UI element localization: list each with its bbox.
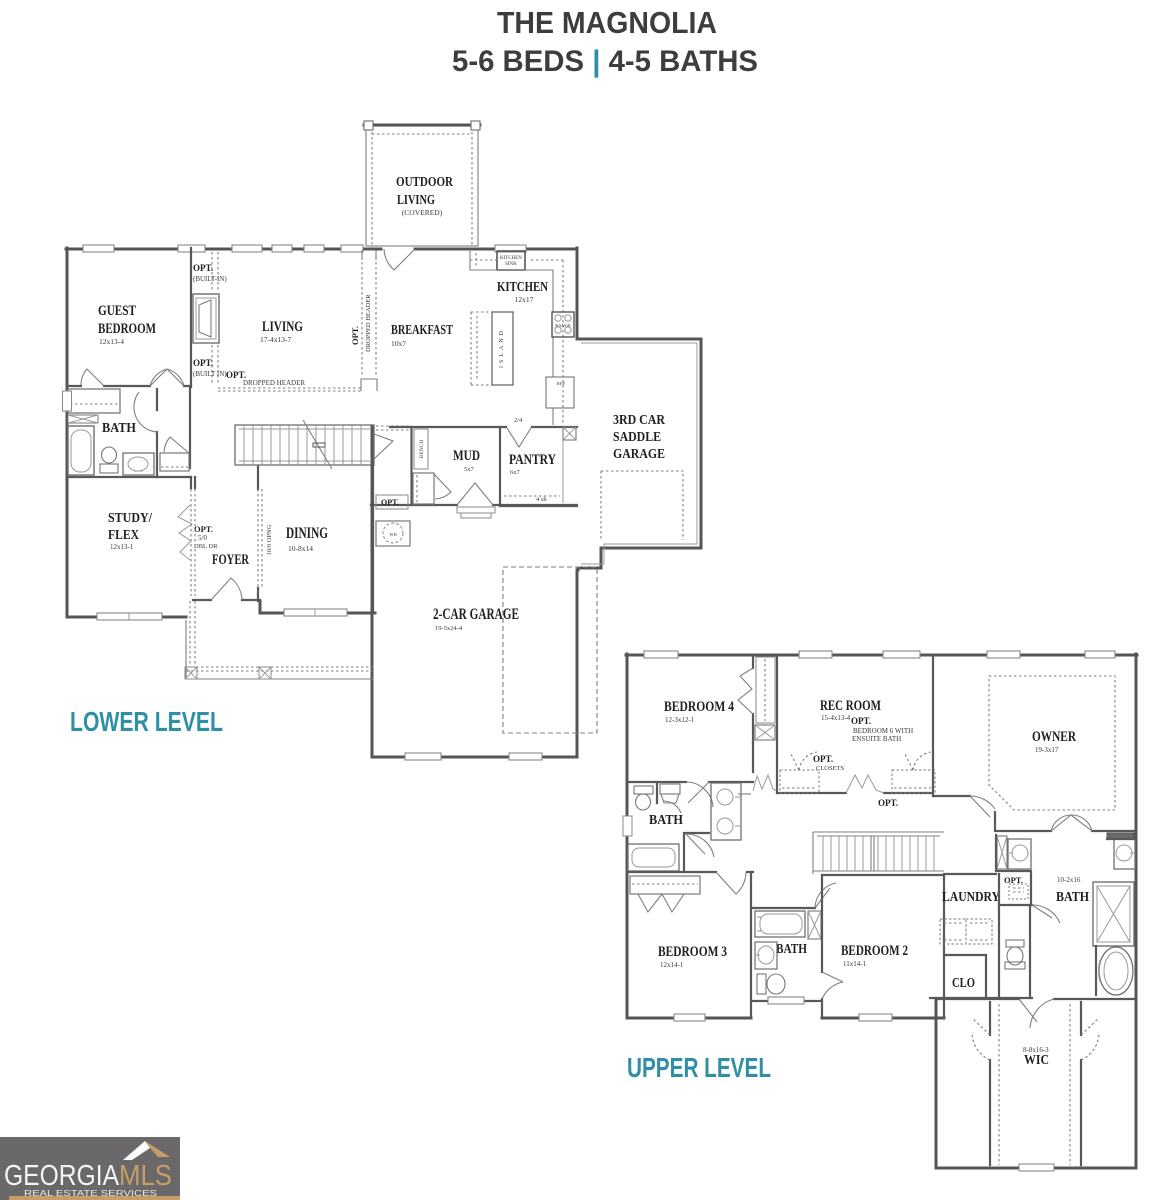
svg-text:LIVING: LIVING [262, 319, 303, 335]
svg-text:10x7: 10x7 [391, 339, 406, 348]
svg-text:BEDROOM: BEDROOM [98, 321, 156, 337]
svg-text:GARAGE: GARAGE [613, 446, 665, 461]
svg-text:WH: WH [389, 532, 397, 537]
svg-text:OPT.: OPT. [813, 754, 833, 764]
svg-text:OPT.: OPT. [194, 524, 213, 534]
svg-text:OPT.: OPT. [350, 326, 360, 345]
svg-text:BEDROOM 3: BEDROOM 3 [658, 944, 727, 960]
svg-text:12x13-1: 12x13-1 [110, 543, 134, 551]
svg-text:BEDROOM 2: BEDROOM 2 [841, 943, 908, 959]
svg-text:ISLAND: ISLAND [499, 328, 505, 368]
svg-text:LIVING: LIVING [397, 193, 435, 208]
svg-text:10-8x14: 10-8x14 [288, 544, 313, 553]
svg-text:17-4x13-7: 17-4x13-7 [260, 335, 291, 344]
svg-text:12x14-1: 12x14-1 [660, 961, 684, 969]
svg-text:BEDROOM 4: BEDROOM 4 [664, 699, 734, 715]
svg-text:WIC: WIC [1024, 1053, 1049, 1068]
svg-text:BENCH: BENCH [419, 440, 425, 459]
svg-text:OPT.: OPT. [193, 263, 213, 273]
svg-text:REF: REF [557, 381, 566, 386]
svg-text:10-2x16: 10-2x16 [1057, 876, 1081, 884]
svg-text:15-4x13-4: 15-4x13-4 [821, 714, 851, 722]
svg-text:UPPER LEVEL: UPPER LEVEL [627, 1052, 771, 1083]
svg-text:SADDLE: SADDLE [613, 429, 661, 444]
svg-text:ENSUITE BATH: ENSUITE BATH [852, 735, 901, 743]
svg-text:4 sh: 4 sh [536, 496, 547, 503]
svg-text:OPT.: OPT. [381, 498, 399, 507]
svg-text:SINK: SINK [505, 262, 517, 267]
svg-text:CLO: CLO [952, 975, 975, 990]
svg-text:12x17: 12x17 [515, 295, 534, 304]
svg-text:10/0 OPNG: 10/0 OPNG [266, 524, 273, 555]
svg-text:5/0: 5/0 [198, 534, 207, 542]
svg-text:5x7: 5x7 [464, 466, 475, 473]
svg-text:THE MAGNOLIA: THE MAGNOLIA [497, 5, 717, 40]
svg-text:OUTDOOR: OUTDOOR [396, 175, 454, 190]
svg-text:RANGE: RANGE [555, 323, 571, 328]
svg-text:(BUILT-IN): (BUILT-IN) [193, 275, 227, 283]
svg-text:LAUNDRY: LAUNDRY [942, 889, 1000, 904]
svg-text:DROPPED HEADER: DROPPED HEADER [365, 294, 372, 352]
svg-text:2-CAR GARAGE: 2-CAR GARAGE [433, 606, 519, 623]
svg-text:2/4: 2/4 [514, 417, 523, 424]
svg-text:3RD CAR: 3RD CAR [613, 412, 665, 427]
svg-text:OPT.: OPT. [193, 358, 213, 368]
svg-text:5-6 BEDS | 4-5 BATHS: 5-6 BEDS | 4-5 BATHS [452, 45, 758, 78]
svg-text:BATH: BATH [776, 941, 807, 956]
svg-text:OPT.: OPT. [851, 716, 871, 726]
svg-text:BEDROOM 6 WITH: BEDROOM 6 WITH [853, 727, 913, 735]
svg-text:DROPPED HEADER: DROPPED HEADER [243, 379, 305, 387]
svg-text:KITCHEN: KITCHEN [497, 280, 548, 295]
svg-text:STUDY/: STUDY/ [108, 510, 152, 525]
svg-text:FOYER: FOYER [212, 552, 249, 568]
svg-text:LOWER LEVEL: LOWER LEVEL [70, 706, 223, 737]
svg-text:REC ROOM: REC ROOM [820, 698, 881, 714]
svg-text:BATH: BATH [102, 420, 136, 435]
svg-text:6x7: 6x7 [510, 469, 521, 476]
svg-text:BATH: BATH [649, 812, 683, 827]
svg-text:OPT.: OPT. [878, 798, 898, 808]
svg-text:PANTRY: PANTRY [509, 452, 556, 468]
svg-text:FLEX: FLEX [108, 527, 139, 542]
svg-text:GUEST: GUEST [98, 303, 136, 319]
svg-text:KITCHEN: KITCHEN [500, 256, 522, 261]
svg-text:(BUILT IN): (BUILT IN) [193, 370, 227, 378]
svg-text:BATH: BATH [1056, 889, 1089, 904]
svg-text:OWNER: OWNER [1032, 729, 1076, 745]
svg-text:19-3x17: 19-3x17 [1035, 746, 1059, 754]
svg-text:12-3x12-1: 12-3x12-1 [665, 716, 695, 724]
svg-text:BREAKFAST: BREAKFAST [391, 323, 453, 338]
svg-text:DBL DR: DBL DR [194, 543, 218, 550]
svg-text:(COVERED): (COVERED) [402, 208, 443, 217]
svg-text:DINING: DINING [286, 525, 328, 542]
svg-text:CLOSETS: CLOSETS [816, 765, 845, 772]
svg-text:MUD: MUD [453, 448, 480, 464]
svg-text:11x14-1: 11x14-1 [843, 960, 867, 968]
svg-text:12x13-4: 12x13-4 [99, 337, 124, 346]
svg-text:19-5x24-4: 19-5x24-4 [435, 625, 463, 632]
svg-text:REAL ESTATE SERVICES: REAL ESTATE SERVICES [24, 1188, 157, 1198]
